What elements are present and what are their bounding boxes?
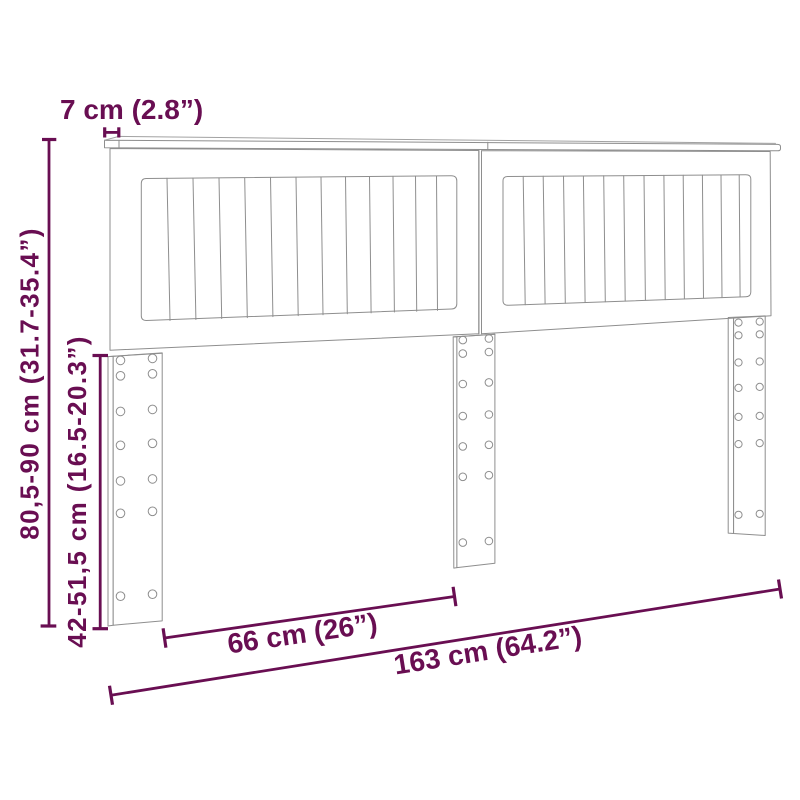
svg-text:66 cm (26”): 66 cm (26”) — [225, 607, 379, 659]
svg-text:163 cm (64.2”): 163 cm (64.2”) — [392, 620, 584, 680]
svg-text:7 cm (2.8”): 7 cm (2.8”) — [60, 94, 203, 125]
svg-text:80,5-90 cm (31.7-35.4”): 80,5-90 cm (31.7-35.4”) — [15, 227, 45, 540]
svg-text:42-51,5 cm (16.5-20.3”): 42-51,5 cm (16.5-20.3”) — [62, 335, 92, 648]
